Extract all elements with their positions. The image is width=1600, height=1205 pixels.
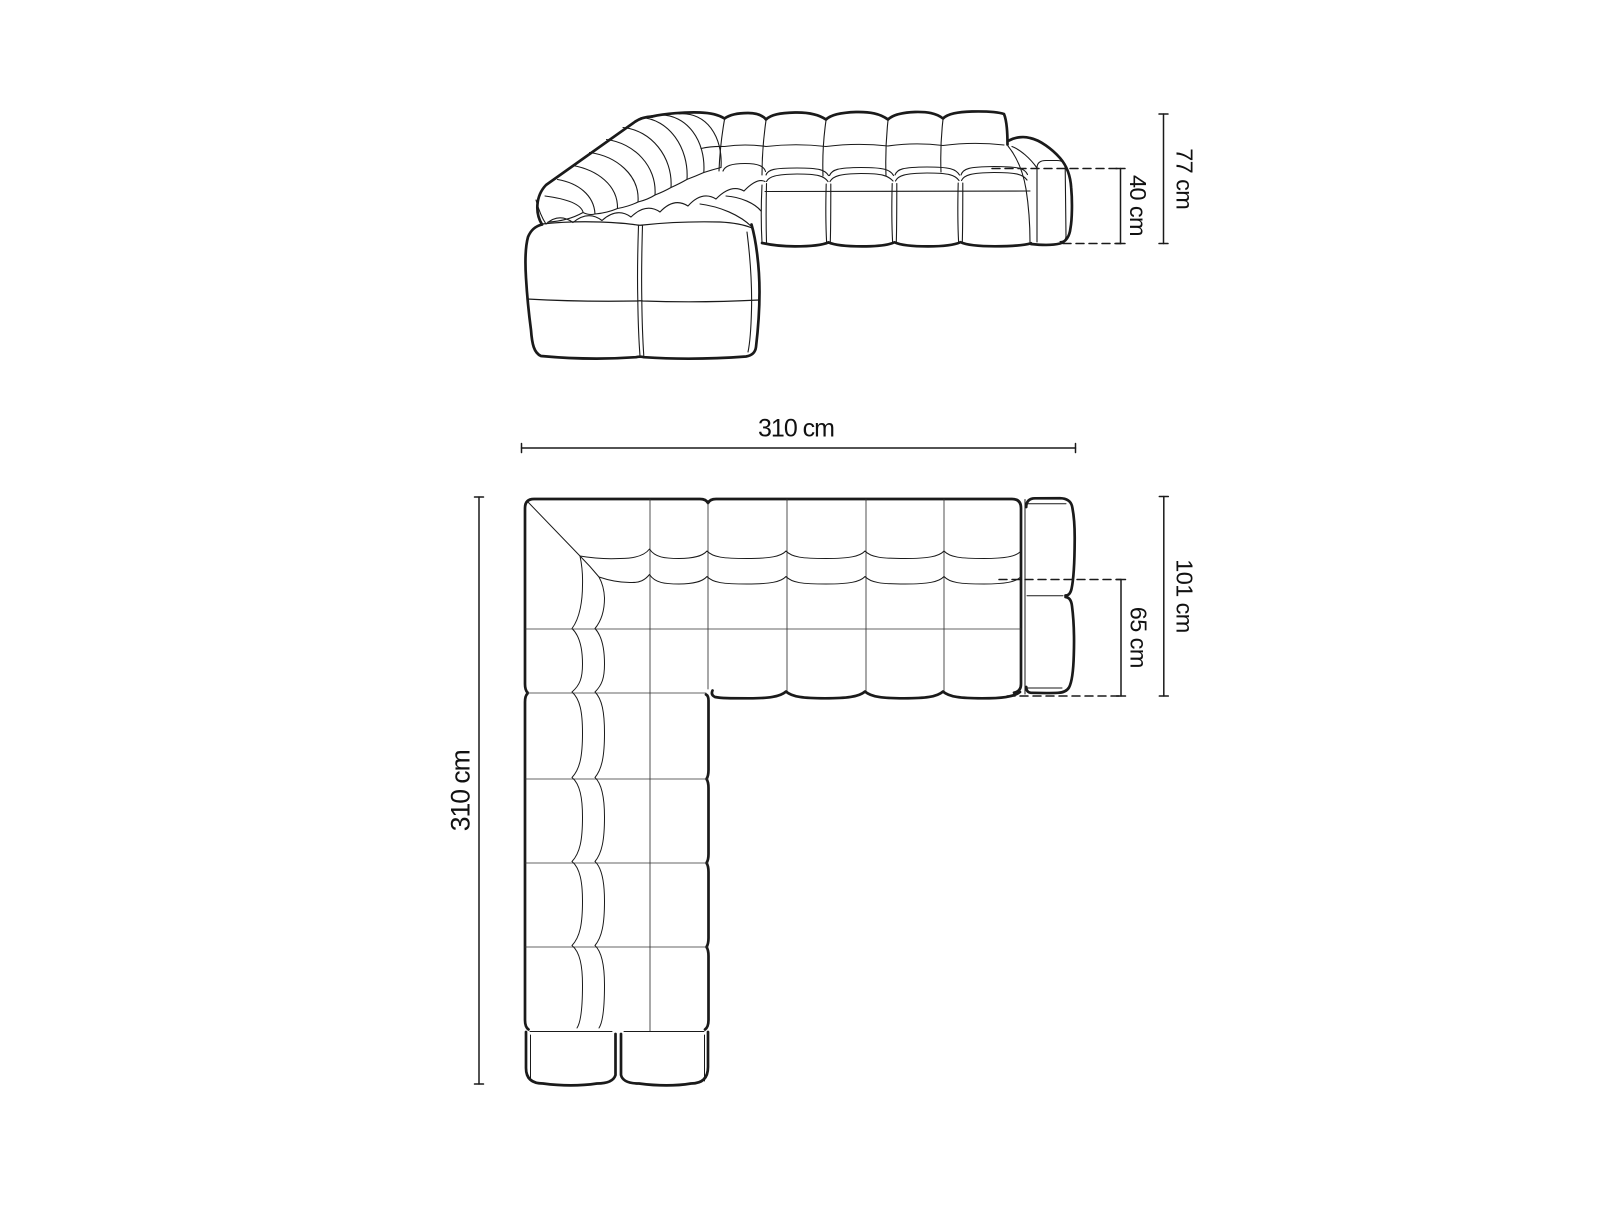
svg-text:65 cm: 65 cm xyxy=(1126,607,1152,668)
svg-text:310 cm: 310 cm xyxy=(758,414,834,442)
svg-text:40 cm: 40 cm xyxy=(1125,175,1151,236)
svg-text:77 cm: 77 cm xyxy=(1171,148,1197,209)
svg-text:310 cm: 310 cm xyxy=(446,750,476,831)
svg-text:101 cm: 101 cm xyxy=(1172,559,1198,632)
